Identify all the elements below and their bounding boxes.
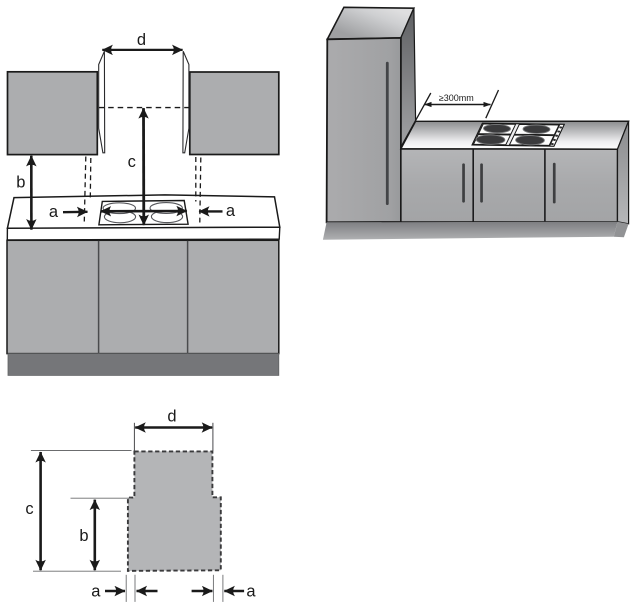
svg-text:≥300mm: ≥300mm — [439, 93, 474, 103]
svg-text:c: c — [25, 500, 33, 518]
svg-text:b: b — [79, 527, 88, 545]
svg-text:a: a — [91, 582, 101, 600]
svg-text:b: b — [16, 173, 25, 191]
svg-text:a: a — [246, 583, 256, 601]
svg-text:a: a — [226, 202, 236, 220]
svg-text:d: d — [137, 31, 146, 49]
svg-text:d: d — [167, 408, 176, 426]
svg-text:c: c — [128, 153, 136, 171]
svg-text:a: a — [49, 203, 59, 221]
